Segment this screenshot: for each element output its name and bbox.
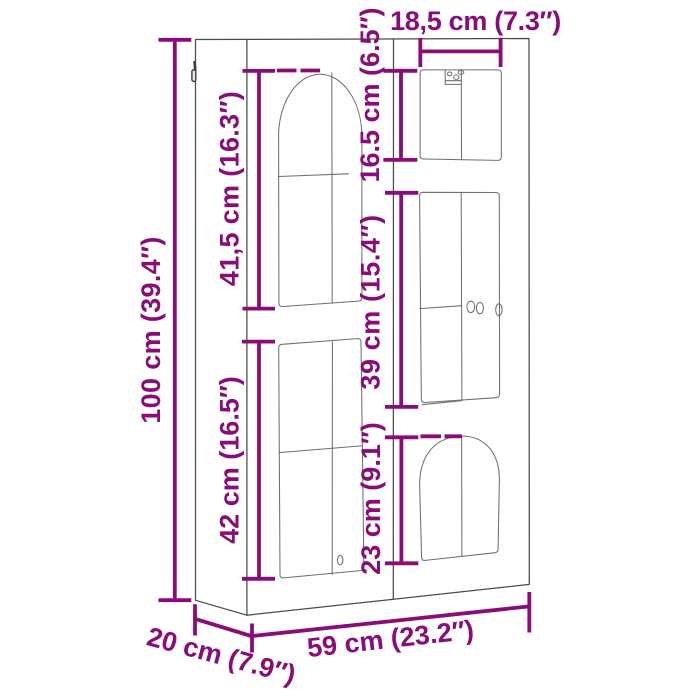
svg-text:100 cm (39.4″): 100 cm (39.4″) [136, 236, 166, 423]
svg-text:23 cm (9.1″): 23 cm (9.1″) [356, 422, 386, 575]
svg-text:39 cm (15.4″): 39 cm (15.4″) [355, 214, 385, 389]
svg-text:18,5 cm (7.3″): 18,5 cm (7.3″) [390, 6, 561, 36]
svg-text:41,5 cm (16.3″): 41,5 cm (16.3″) [214, 91, 244, 286]
svg-text:42 cm (16.5″): 42 cm (16.5″) [215, 376, 245, 544]
svg-text:16.5 cm (6.5″): 16.5 cm (6.5″) [355, 7, 385, 182]
